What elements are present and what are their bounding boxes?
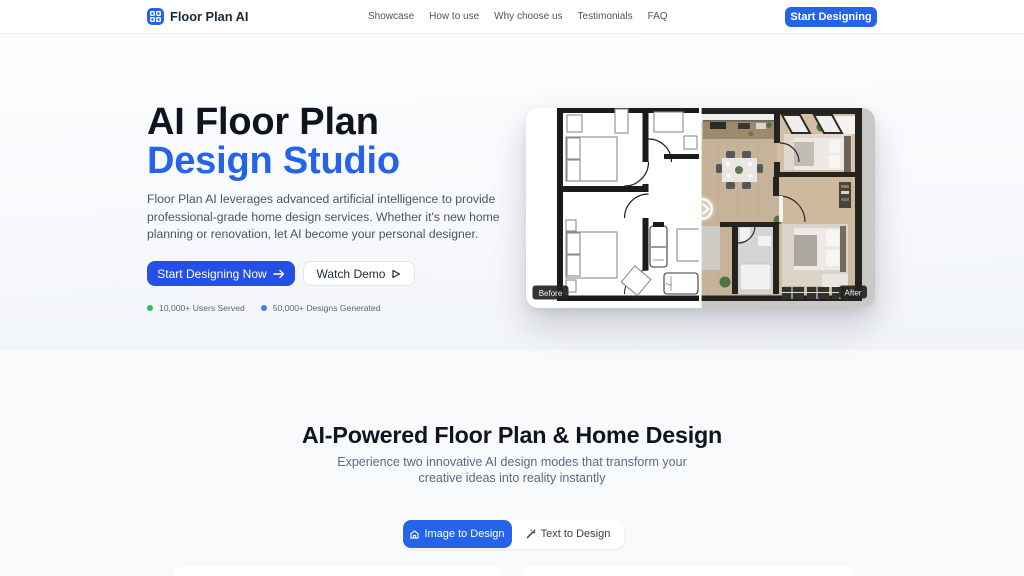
svg-text:After: After: [845, 288, 862, 297]
svg-text:Before: Before: [539, 289, 563, 298]
